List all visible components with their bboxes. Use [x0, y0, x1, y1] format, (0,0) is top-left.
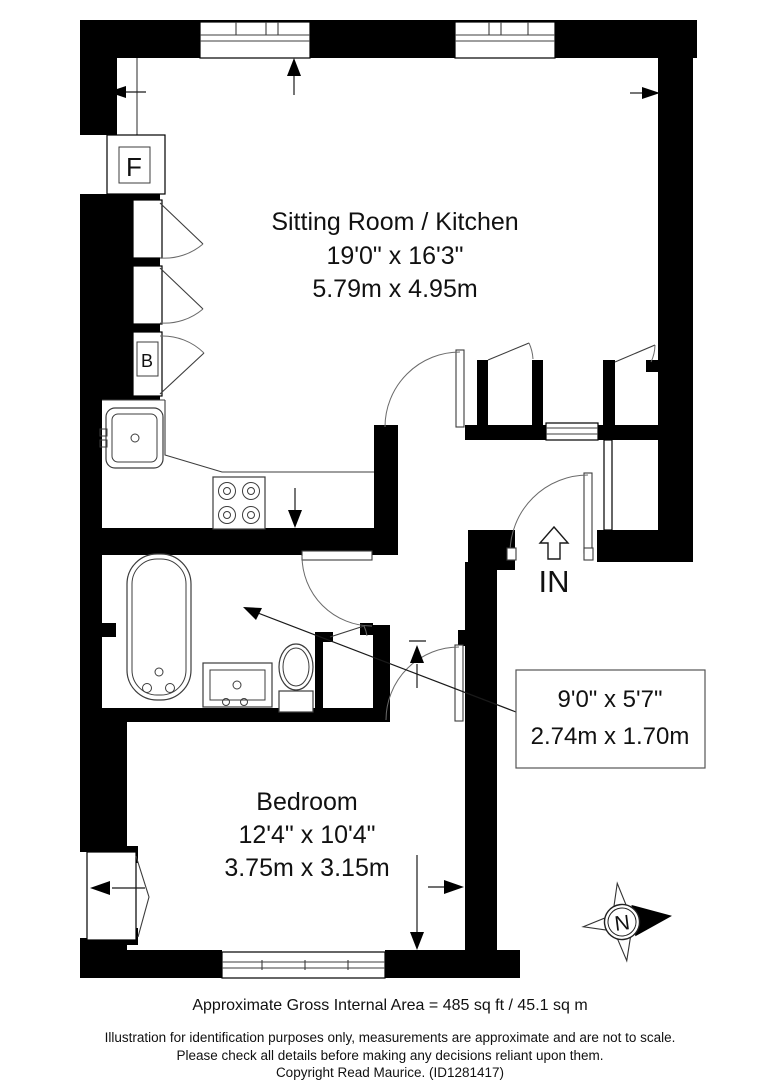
- bedroom-metric: 3.75m x 3.15m: [224, 854, 389, 882]
- entrance-in-arrow-icon: [540, 527, 568, 559]
- hob: [213, 477, 265, 529]
- entry-recess-thin-wall: [604, 440, 612, 530]
- bedroom-name: Bedroom: [256, 788, 357, 816]
- bathroom-door: [302, 551, 372, 626]
- bedroom-down-arrow: [410, 855, 424, 950]
- wall-storage-left: [315, 632, 323, 715]
- toilet: [279, 644, 313, 712]
- wall-left-step: [98, 623, 116, 637]
- footer-area-line: Approximate Gross Internal Area = 485 sq…: [192, 997, 587, 1014]
- fridge-label: F: [126, 152, 142, 182]
- compass: N: [579, 877, 676, 965]
- bathroom-dimension-box: 9'0" x 5'7" 2.74m x 1.70m: [516, 670, 705, 768]
- sitting-room-imperial: 19'0" x 16'3": [326, 242, 463, 270]
- wall-closet-right-a: [603, 360, 615, 437]
- cupboard-door-3: [160, 336, 204, 394]
- wardrobe-bifold-doors: [136, 856, 149, 937]
- wall-bedroom-bottom-right: [385, 950, 520, 978]
- boiler-label: B: [141, 351, 153, 371]
- wall-top: [80, 20, 697, 58]
- footer-disclaimer-line2: Please check all details before making a…: [177, 1048, 604, 1063]
- floorplan-page: F B: [0, 0, 780, 1080]
- wall-left-upper: [80, 20, 117, 135]
- wall-closet-left-b: [532, 360, 543, 437]
- doors: [136, 203, 655, 937]
- sitting-room-name: Sitting Room / Kitchen: [271, 208, 518, 236]
- wall-hall-column: [374, 425, 398, 555]
- sitting-room-door: [385, 350, 464, 427]
- window-sitting-left: [200, 22, 310, 58]
- closet-left-door: [488, 343, 533, 360]
- entrance-marker: IN: [539, 527, 570, 599]
- wardrobe-recess: [87, 852, 136, 940]
- wall-bedroom-left-upper: [80, 715, 127, 852]
- wall-bedroom-bottom-left: [80, 950, 222, 978]
- cupboard-door-1: [160, 203, 203, 258]
- cupboard-door-2: [160, 268, 203, 323]
- bedroom-right-arrow: [428, 880, 464, 894]
- footer-disclaimer-line1: Illustration for identification purposes…: [105, 1030, 676, 1045]
- floorplan-svg: F B: [0, 0, 780, 1080]
- window-bedroom: [222, 952, 385, 978]
- wall-closet-left-a: [477, 360, 488, 437]
- closet-right-door: [615, 345, 655, 362]
- compass-north-label: N: [613, 911, 631, 936]
- bathroom-metric: 2.74m x 1.70m: [531, 723, 690, 750]
- wall-bedroom-door-stub: [458, 630, 478, 646]
- window-hall: [546, 423, 598, 440]
- wall-entry-right: [597, 530, 693, 562]
- sitting-room-metric: 5.79m x 4.95m: [312, 275, 477, 303]
- bathroom-basin: [203, 663, 272, 707]
- wall-closet-right-stub: [646, 360, 660, 372]
- kitchen-sink: [100, 408, 163, 468]
- footer-copyright-line: Copyright Read Maurice. (ID1281417): [276, 1065, 504, 1080]
- sitting-room-up-arrow: [287, 58, 301, 95]
- wall-right: [658, 20, 693, 562]
- bedroom-imperial: 12'4" x 10'4": [238, 821, 375, 849]
- wall-bedroom-top: [93, 708, 390, 722]
- window-sitting-right: [455, 22, 555, 58]
- sitting-room-right-arrow: [630, 87, 660, 99]
- kitchen-down-arrow: [288, 488, 302, 528]
- bedroom-door: [386, 645, 463, 721]
- wall-left-mid: [80, 400, 102, 722]
- bathroom-imperial: 9'0" x 5'7": [558, 686, 663, 713]
- bathtub: [127, 554, 191, 700]
- wall-bedroom-right: [465, 562, 497, 978]
- cupboard-opening-2: [133, 266, 162, 324]
- entrance-in-label: IN: [539, 564, 570, 599]
- cupboard-opening-1: [133, 200, 162, 258]
- fridge-box: F: [107, 135, 165, 194]
- wall-storage-right: [373, 625, 390, 715]
- footer: Approximate Gross Internal Area = 485 sq…: [105, 997, 676, 1080]
